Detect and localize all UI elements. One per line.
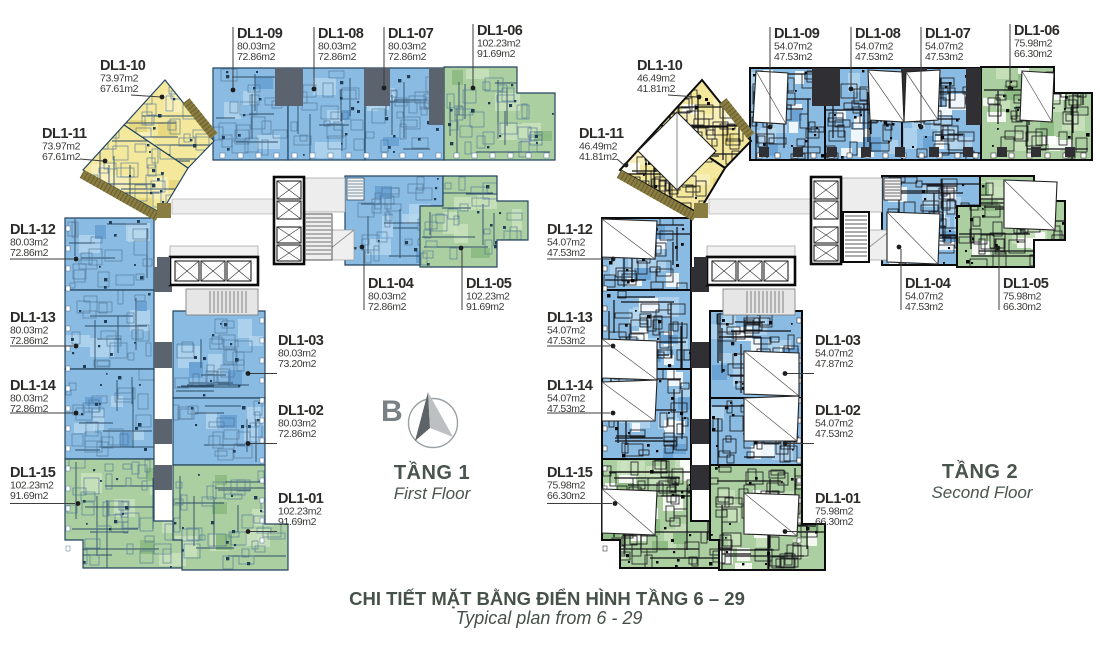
svg-text:41.81m2: 41.81m2	[637, 83, 676, 95]
svg-text:TẦNG 2: TẦNG 2	[942, 460, 1018, 483]
svg-text:72.86m2: 72.86m2	[388, 51, 427, 63]
svg-text:72.86m2: 72.86m2	[10, 335, 49, 347]
svg-text:72.86m2: 72.86m2	[368, 301, 407, 313]
svg-text:47.53m2: 47.53m2	[905, 301, 944, 313]
svg-text:66.30m2: 66.30m2	[547, 490, 586, 502]
svg-text:91.69m2: 91.69m2	[10, 490, 49, 502]
svg-text:41.81m2: 41.81m2	[579, 151, 618, 163]
svg-text:72.86m2: 72.86m2	[237, 51, 276, 63]
svg-text:47.53m2: 47.53m2	[547, 403, 586, 415]
svg-text:91.69m2: 91.69m2	[278, 516, 317, 528]
svg-text:47.53m2: 47.53m2	[774, 51, 813, 63]
svg-text:91.69m2: 91.69m2	[466, 301, 505, 313]
svg-text:Second Floor: Second Floor	[931, 483, 1033, 502]
svg-text:47.53m2: 47.53m2	[547, 247, 586, 259]
svg-text:66.30m2: 66.30m2	[815, 516, 854, 528]
svg-text:47.53m2: 47.53m2	[547, 335, 586, 347]
svg-text:66.30m2: 66.30m2	[1003, 301, 1042, 313]
svg-text:47.53m2: 47.53m2	[925, 51, 964, 63]
svg-text:Typical plan from 6 - 29: Typical plan from 6 - 29	[456, 608, 643, 628]
svg-text:TẦNG 1: TẦNG 1	[394, 461, 470, 484]
svg-text:91.69m2: 91.69m2	[477, 48, 516, 60]
svg-text:47.53m2: 47.53m2	[855, 51, 894, 63]
svg-text:B: B	[381, 395, 403, 428]
svg-text:67.61m2: 67.61m2	[42, 151, 81, 163]
svg-text:47.53m2: 47.53m2	[815, 428, 854, 440]
svg-text:72.86m2: 72.86m2	[318, 51, 357, 63]
svg-text:67.61m2: 67.61m2	[100, 83, 139, 95]
svg-text:CHI TIẾT MẶT BẰNG ĐIỂN HÌNH TẦ: CHI TIẾT MẶT BẰNG ĐIỂN HÌNH TẦNG 6 – 29	[349, 588, 745, 609]
svg-text:47.87m2: 47.87m2	[815, 358, 854, 370]
svg-text:First Floor: First Floor	[394, 484, 472, 503]
svg-text:72.86m2: 72.86m2	[278, 428, 317, 440]
svg-text:72.86m2: 72.86m2	[10, 403, 49, 415]
svg-text:72.86m2: 72.86m2	[10, 247, 49, 259]
svg-text:66.30m2: 66.30m2	[1014, 48, 1053, 60]
svg-text:73.20m2: 73.20m2	[278, 358, 317, 370]
